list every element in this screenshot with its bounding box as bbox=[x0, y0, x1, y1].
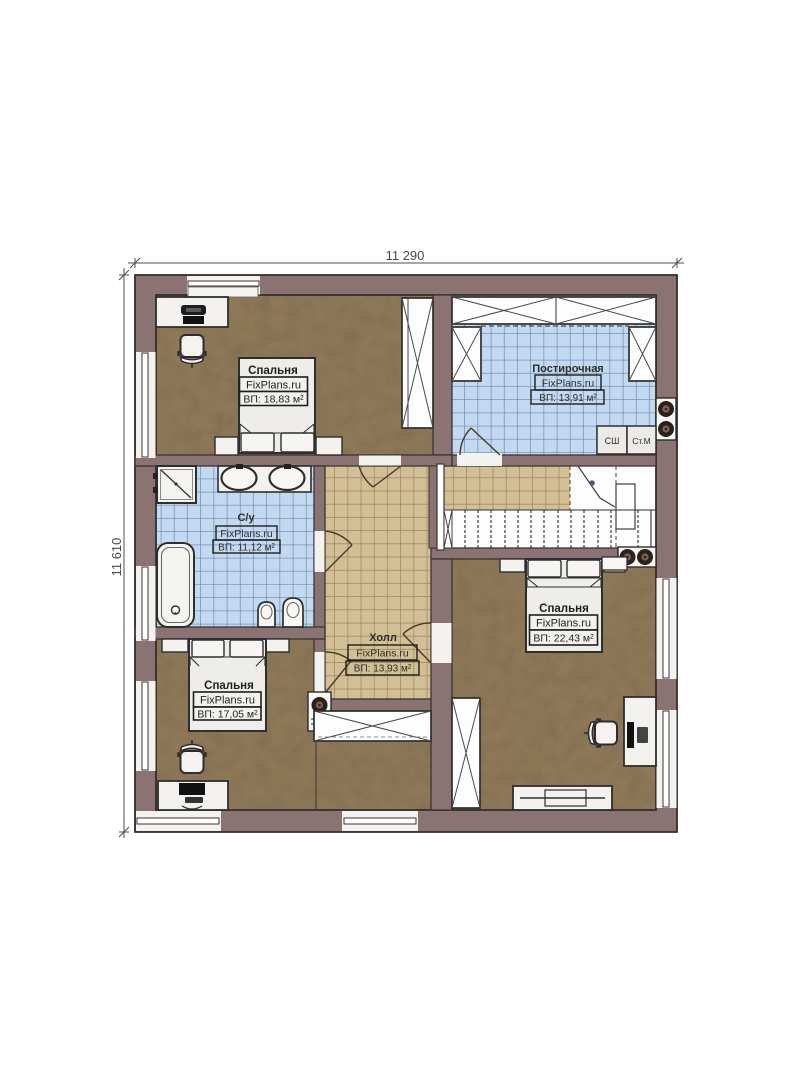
svg-text:FixPlans.ru: FixPlans.ru bbox=[220, 528, 273, 540]
svg-text:FixPlans.ru: FixPlans.ru bbox=[200, 695, 255, 707]
svg-text:FixPlans.ru: FixPlans.ru bbox=[542, 378, 595, 390]
svg-text:Спальня: Спальня bbox=[539, 603, 589, 615]
svg-text:11 610: 11 610 bbox=[109, 538, 124, 577]
svg-text:FixPlans.ru: FixPlans.ru bbox=[246, 380, 301, 392]
svg-text:Спальня: Спальня bbox=[204, 680, 254, 692]
svg-text:Ст.М: Ст.М bbox=[632, 436, 651, 446]
svg-text:FixPlans.ru: FixPlans.ru bbox=[536, 618, 591, 630]
svg-text:Холл: Холл bbox=[369, 632, 397, 644]
svg-text:ВП: 22,43 м²: ВП: 22,43 м² bbox=[533, 633, 594, 645]
svg-text:ВП: 18,83 м²: ВП: 18,83 м² bbox=[243, 394, 304, 406]
svg-text:С/у: С/у bbox=[237, 512, 255, 524]
svg-text:FixPlans.ru: FixPlans.ru bbox=[356, 648, 409, 660]
svg-text:ВП: 13,93 м²: ВП: 13,93 м² bbox=[354, 664, 412, 675]
svg-text:ВП: 17,05 м²: ВП: 17,05 м² bbox=[197, 709, 258, 721]
svg-text:ВП: 13,91 м²: ВП: 13,91 м² bbox=[539, 393, 597, 404]
svg-text:11 290: 11 290 bbox=[386, 248, 425, 263]
svg-text:Постирочная: Постирочная bbox=[532, 363, 603, 375]
svg-text:Спальня: Спальня bbox=[248, 365, 298, 377]
svg-text:ВП: 11,12 м²: ВП: 11,12 м² bbox=[218, 543, 275, 554]
svg-text:СШ: СШ bbox=[605, 436, 620, 446]
